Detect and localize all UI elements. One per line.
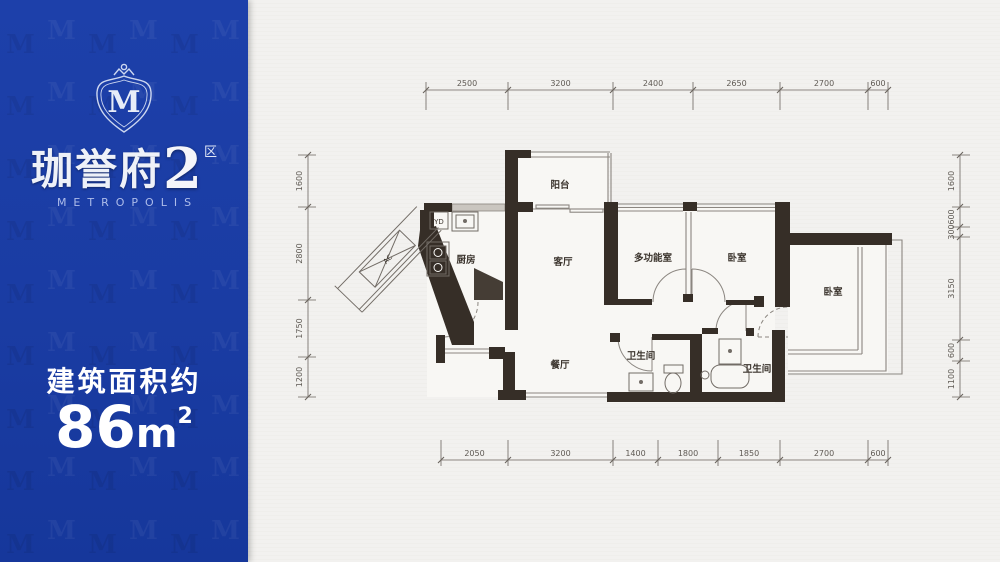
page: { "panel": { "logo": { "letter": "M" }, … (0, 0, 1000, 562)
dim-bottom-5: 2700 (814, 449, 834, 458)
room-label-living: 客厅 (552, 256, 573, 268)
dim-top-0: 2500 (457, 79, 477, 88)
dim-bottom-3: 1800 (678, 449, 698, 458)
ac-label: AC (382, 253, 394, 266)
room-label-multiroom: 多功能室 (634, 252, 673, 264)
floor-plan: AC 阳台 厨房 客厅 多功能室 卧室 卧室 餐厅 卫生间 卫生间 YD 250… (0, 0, 1000, 562)
dim-bottom-0: 2050 (464, 449, 484, 458)
dim-bottom-6: 600 (870, 449, 885, 458)
room-label-kitchen: 厨房 (456, 254, 475, 266)
dim-right-1: 600 (947, 209, 956, 224)
dim-bottom-2: 1400 (625, 449, 645, 458)
dim-bottom-4: 1850 (739, 449, 759, 458)
room-label-bathroom2: 卫生间 (743, 363, 772, 375)
dim-top-5: 600 (870, 79, 885, 88)
room-label-bathroom1: 卫生间 (627, 350, 656, 362)
dim-right-5: 1100 (947, 369, 956, 389)
dim-left-2: 1750 (295, 318, 304, 338)
room-label-dining: 餐厅 (549, 359, 570, 371)
room-label-bedroom2: 卧室 (823, 286, 843, 298)
dim-top-3: 2650 (726, 79, 746, 88)
dim-top-2: 2400 (643, 79, 663, 88)
dim-top-4: 2700 (814, 79, 834, 88)
dim-left-1: 2800 (295, 243, 304, 263)
room-fills (427, 153, 888, 403)
dim-right-3: 3150 (947, 278, 956, 298)
room-label-balcony: 阳台 (550, 179, 570, 191)
laundry-label: YD (433, 218, 444, 226)
dim-right-0: 1600 (947, 171, 956, 191)
dim-top-1: 3200 (550, 79, 570, 88)
room-label-bedroom1: 卧室 (727, 252, 747, 264)
dim-right-2: 300 (947, 224, 956, 239)
dim-right-4: 600 (947, 343, 956, 358)
dim-left-3: 1200 (295, 367, 304, 387)
dim-left-0: 1600 (295, 171, 304, 191)
dim-bottom-1: 3200 (550, 449, 570, 458)
kitchen-stove (427, 242, 449, 276)
